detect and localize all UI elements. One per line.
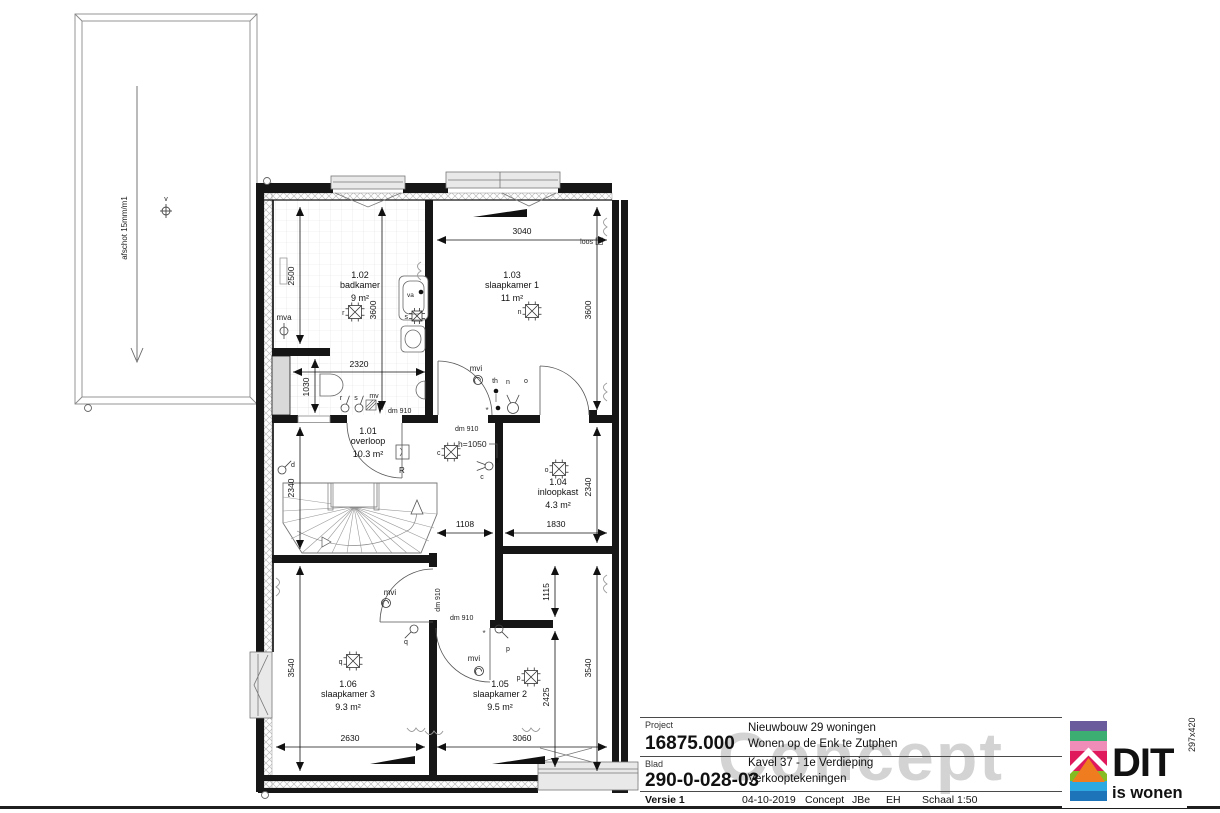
room-label: 1.06 — [339, 679, 357, 689]
scale: Schaal 1:50 — [922, 794, 977, 806]
annotation-label: d — [291, 462, 295, 469]
floor-plan-drawing: 2500360010302340354036002340111535402425… — [0, 0, 1220, 813]
date: 04-10-2019 — [742, 794, 796, 806]
blad-number: 290-0-028-03 — [645, 770, 759, 792]
light-label: q — [339, 659, 343, 666]
project-number: 16875.000 — [645, 733, 735, 755]
dimension-label: 3540 — [286, 658, 296, 677]
light-icon: o — [545, 460, 569, 479]
blad-label: Blad — [645, 759, 663, 769]
mvi-fan-icon — [382, 599, 391, 608]
annotation-label: mvi — [470, 364, 483, 373]
toilet — [320, 374, 343, 396]
room-label: 1.04 — [549, 477, 567, 487]
logo-text-main: DIT — [1112, 741, 1174, 785]
dimension-label: 3600 — [583, 300, 593, 319]
status: Concept — [805, 794, 844, 806]
radiator-icon — [604, 383, 608, 401]
logo-stripe — [1070, 731, 1107, 741]
project-line2: Wonen op de Enk te Zutphen — [748, 738, 897, 750]
sheet-border — [0, 806, 1220, 809]
annotation-label: dm 910 — [450, 615, 473, 622]
rainwater-pipe-icon — [262, 792, 269, 799]
annotation-label: dm 910 — [388, 408, 411, 415]
window-top-2 — [446, 172, 560, 206]
annotation-label: va — [407, 292, 414, 299]
dimension-label: 2320 — [350, 359, 369, 369]
door-mark: * — [482, 629, 485, 638]
room-label: slaapkamer 1 — [485, 280, 539, 290]
logo-stripe — [1070, 791, 1107, 801]
annotation-label: mvi — [468, 654, 481, 663]
switch-icon — [278, 461, 291, 474]
annotation-label: q — [404, 639, 408, 646]
project-label: Project — [645, 720, 673, 730]
dimension-label: 2340 — [286, 478, 296, 497]
annotation-label: o — [524, 378, 528, 385]
door-wc — [298, 416, 330, 423]
mvi-fan-icon — [474, 376, 483, 385]
dimension-label: 3040 — [513, 226, 532, 236]
annotation-label: loos — [580, 239, 593, 246]
room-label: 9.3 m² — [335, 702, 361, 712]
drawn-by: JBe — [852, 794, 870, 806]
room-label: 1.01 — [359, 426, 377, 436]
logo-stripe — [1070, 721, 1107, 731]
blad-line2: Verkooptekeningen — [748, 773, 846, 785]
annotation-label: h=1050 — [458, 439, 487, 449]
radiator-icon — [276, 578, 280, 596]
dimension-label: 3540 — [583, 658, 593, 677]
room-label: badkamer — [340, 280, 380, 290]
dimension-label: 1115 — [541, 583, 551, 601]
light-icon: c — [437, 443, 461, 462]
mvi-fan-icon — [475, 667, 484, 676]
room-label: slaapkamer 3 — [321, 689, 375, 699]
annotation-label: th — [492, 378, 498, 385]
door-slaapkamer1 — [438, 361, 492, 415]
versie: Versie 1 — [645, 794, 685, 806]
light-icon: n — [518, 302, 542, 321]
rainwater-pipe-icon — [85, 405, 92, 412]
drawing-sheet: 2500360010302340354036002340111535402425… — [0, 0, 1220, 813]
dimension-label: 1830 — [547, 519, 566, 529]
dimension-label: 3060 — [513, 733, 532, 743]
radiator-icon — [407, 728, 425, 732]
project-line1: Nieuwbouw 29 woningen — [748, 722, 876, 734]
room-label: overloop — [351, 436, 386, 446]
light-label: s — [405, 314, 409, 321]
annotation-label: mva — [276, 313, 292, 322]
annotation-label: s — [354, 395, 358, 402]
room-label: 9.5 m² — [487, 702, 513, 712]
radiator-icon — [604, 575, 608, 593]
light-icon: p — [517, 668, 541, 687]
rainwater-pipe-icon — [264, 178, 271, 185]
annotation-label: dm 910 — [435, 588, 442, 611]
annotation-label: p — [506, 646, 510, 653]
room-label: inloopkast — [538, 487, 579, 497]
logo-stripe — [1070, 781, 1107, 791]
annotation-label: mvi — [384, 588, 397, 597]
room-label: 9 m² — [351, 293, 369, 303]
blad-line1: Kavel 37 - 1e Verdieping — [748, 757, 873, 769]
dit-is-wonen-logo: DIT is wonen — [1062, 716, 1187, 808]
window-left — [250, 652, 272, 718]
dimension-label: 1030 — [301, 377, 311, 396]
dimension-label: 2425 — [541, 687, 551, 706]
light-label: o — [545, 467, 549, 474]
dimension-label: 2340 — [583, 477, 593, 496]
light-label: p — [517, 675, 521, 682]
annotation-label: dm 910 — [455, 426, 478, 433]
room-label: 11 m² — [501, 293, 523, 303]
room-label: 1.03 — [503, 270, 521, 280]
light-icon: q — [339, 652, 363, 671]
room-label: 4.3 m² — [545, 500, 571, 510]
shaft — [272, 356, 290, 415]
connection-dot — [494, 389, 499, 394]
room-label: 1.05 — [491, 679, 509, 689]
room-label: 1.02 — [351, 270, 369, 280]
door-mark: * — [485, 406, 488, 415]
connection-dot — [496, 406, 501, 411]
room-label: 10.3 m² — [353, 449, 384, 459]
annotation-label: c — [480, 474, 484, 481]
dimension-label: 2630 — [341, 733, 360, 743]
paper-size: 297x420 — [1187, 717, 1197, 752]
door-inloopkast — [540, 366, 589, 415]
radiator-icon — [604, 218, 608, 236]
annotation-label: R — [399, 466, 405, 475]
light-label: n — [518, 309, 522, 316]
dimension-label: 3600 — [368, 300, 378, 319]
switch-icon — [507, 395, 519, 414]
annotation-label: afschot 15mm/m1 — [120, 196, 129, 260]
checked-by: EH — [886, 794, 901, 806]
r-box — [396, 445, 409, 459]
dimension-label: 2500 — [286, 266, 296, 285]
connection-dot — [419, 290, 424, 295]
room-label: slaapkamer 2 — [473, 689, 527, 699]
switch-icon — [477, 462, 493, 471]
annotation-label: v — [164, 196, 168, 203]
dimension-label: 1108 — [456, 519, 475, 529]
logo-text-sub: is wonen — [1112, 784, 1183, 802]
flat-roof — [75, 14, 257, 412]
light-label: c — [437, 450, 441, 457]
annotation-label: mv — [369, 393, 379, 400]
annotation-label: n — [506, 379, 510, 386]
stairs — [283, 483, 437, 553]
switch-icon — [405, 625, 418, 638]
radiator-icon — [522, 728, 540, 732]
